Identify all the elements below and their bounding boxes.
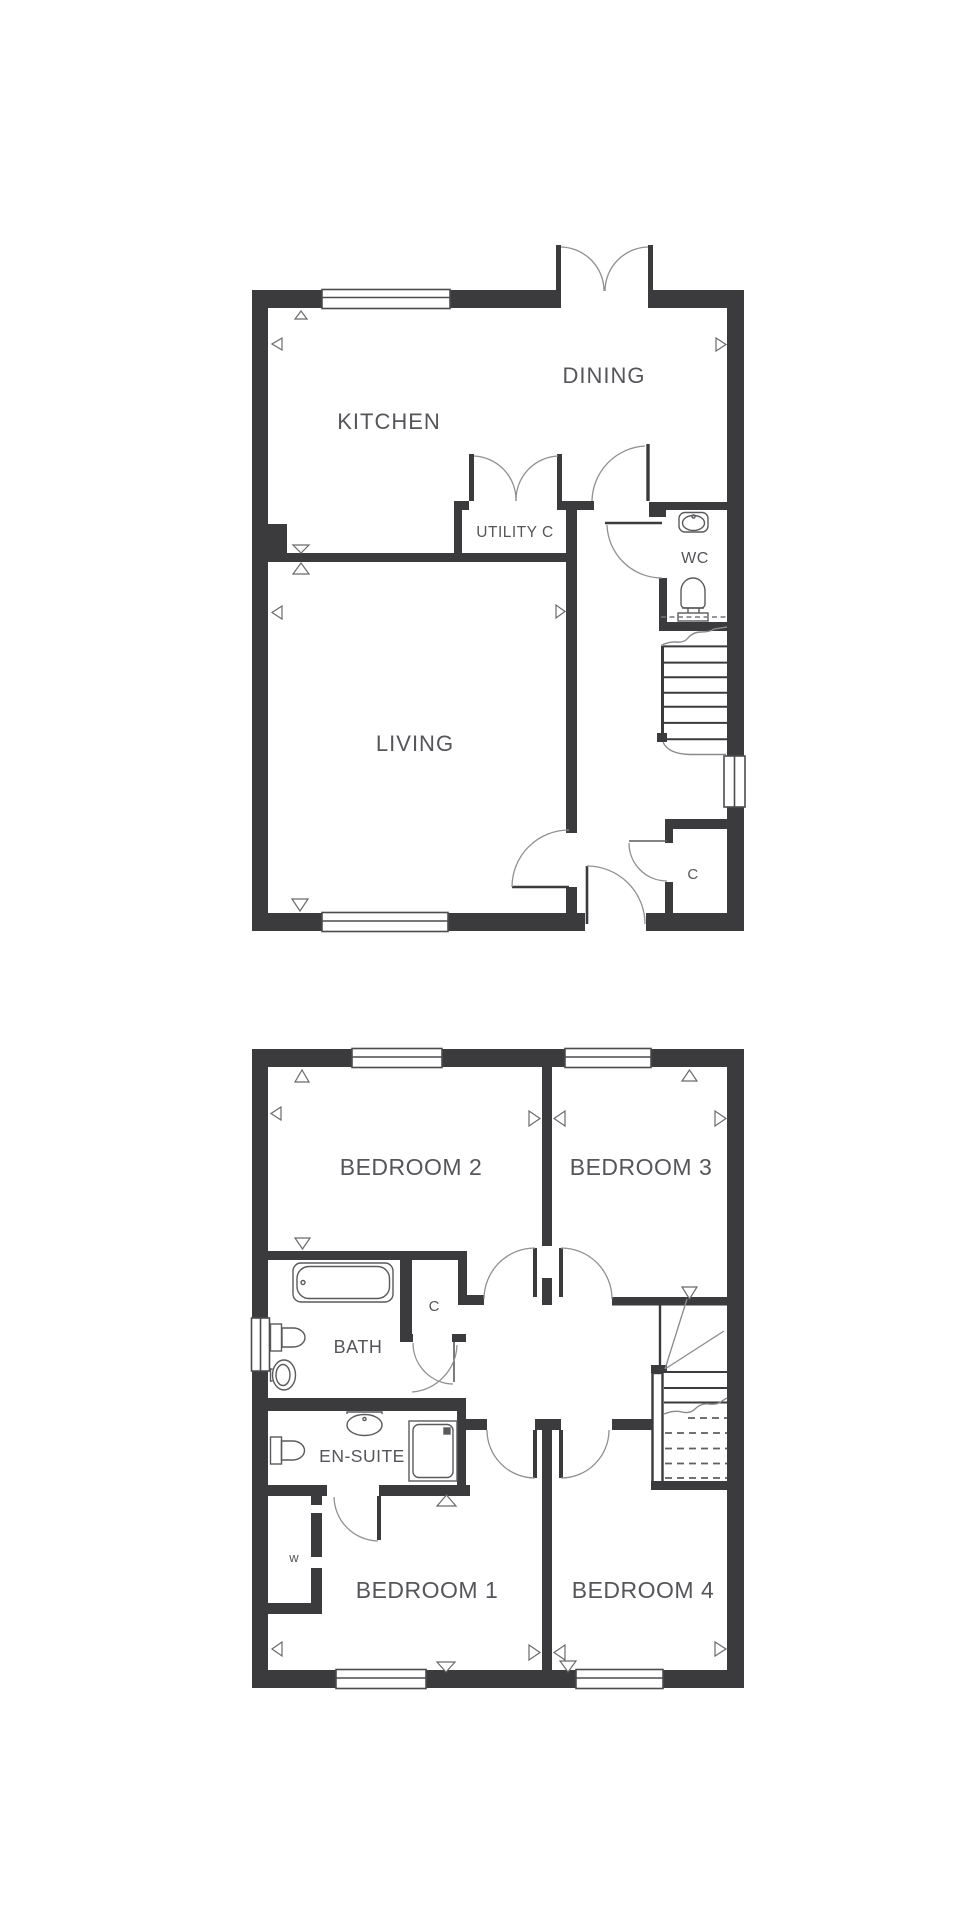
svg-text:C: C xyxy=(429,1298,440,1315)
svg-text:BEDROOM 1: BEDROOM 1 xyxy=(356,1577,499,1603)
svg-text:C: C xyxy=(687,866,698,883)
svg-text:BATH: BATH xyxy=(334,1337,383,1357)
svg-text:DINING: DINING xyxy=(563,363,646,388)
svg-text:BEDROOM 4: BEDROOM 4 xyxy=(572,1577,715,1603)
svg-text:BEDROOM 3: BEDROOM 3 xyxy=(570,1154,713,1180)
svg-text:w: w xyxy=(288,1550,299,1565)
svg-text:BEDROOM 2: BEDROOM 2 xyxy=(340,1154,483,1180)
svg-text:EN-SUITE: EN-SUITE xyxy=(319,1446,405,1466)
svg-text:LIVING: LIVING xyxy=(376,731,454,756)
svg-text:WC: WC xyxy=(681,550,709,567)
svg-text:UTILITY C: UTILITY C xyxy=(476,524,553,541)
svg-text:KITCHEN: KITCHEN xyxy=(337,409,441,434)
